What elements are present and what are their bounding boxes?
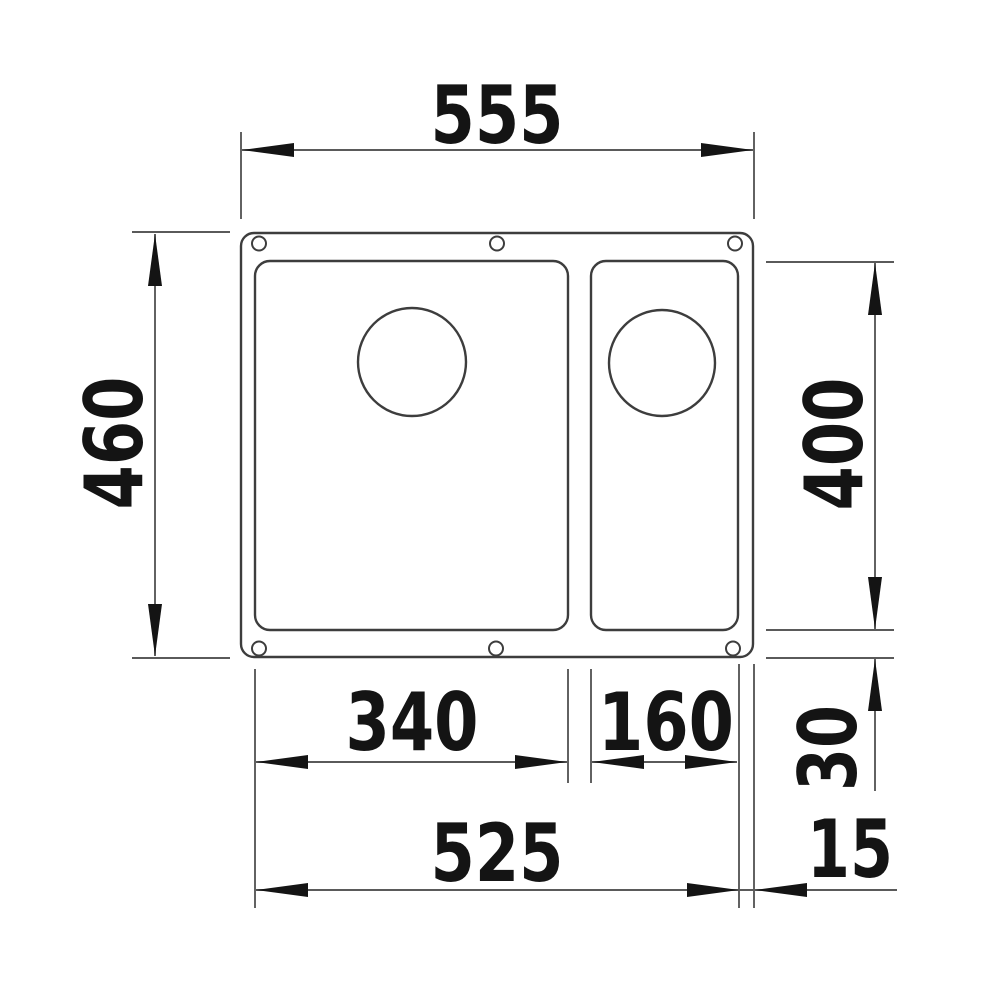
arrowhead-side-rim [755,883,807,897]
dimension-label-side-rim-offset: 15 [807,803,893,896]
small-bowl-drain-hole [609,310,715,416]
mounting-hole [252,642,266,656]
drawing-canvas: 555 460 400 30 [0,0,992,992]
mounting-hole [252,237,266,251]
arrowhead-right [515,755,567,769]
main-bowl-drain-hole [358,308,466,416]
arrowhead-right [687,883,739,897]
small-bowl [591,261,738,630]
arrowhead-up [868,659,882,711]
sink-technical-drawing: 555 460 400 30 [0,0,992,992]
arrowhead-right [701,143,753,157]
dimension-label-bowl-span-width: 525 [431,807,564,900]
dimension-label-overall-width: 555 [431,69,564,162]
arrowhead-up [148,234,162,286]
dimension-label-bowl-length: 400 [788,378,881,511]
dimension-label-bottom-rim-offset: 30 [782,705,875,791]
mounting-hole [489,642,503,656]
dimension-overall-width: 555 [241,69,754,219]
dimension-bottom-rim-offset: 30 [766,658,894,791]
mounting-holes [252,237,742,656]
sink-outer-rim [241,233,753,657]
dimension-bowl-length: 400 [766,262,894,630]
arrowhead-left [256,755,308,769]
mounting-hole [726,642,740,656]
arrowhead-left [256,883,308,897]
dimension-overall-height: 460 [68,232,230,658]
dimension-label-small-bowl-width: 160 [598,676,734,769]
dimension-small-bowl-width: 160 [591,664,739,908]
sink-body [241,233,753,657]
arrowhead-down [868,577,882,629]
mounting-hole [728,237,742,251]
arrowhead-up [868,263,882,315]
dimension-label-overall-height: 460 [68,377,161,510]
arrowhead-down [148,604,162,656]
dimension-label-main-bowl-width: 340 [346,676,479,769]
main-bowl [255,261,568,630]
mounting-hole [490,237,504,251]
arrowhead-left [242,143,294,157]
